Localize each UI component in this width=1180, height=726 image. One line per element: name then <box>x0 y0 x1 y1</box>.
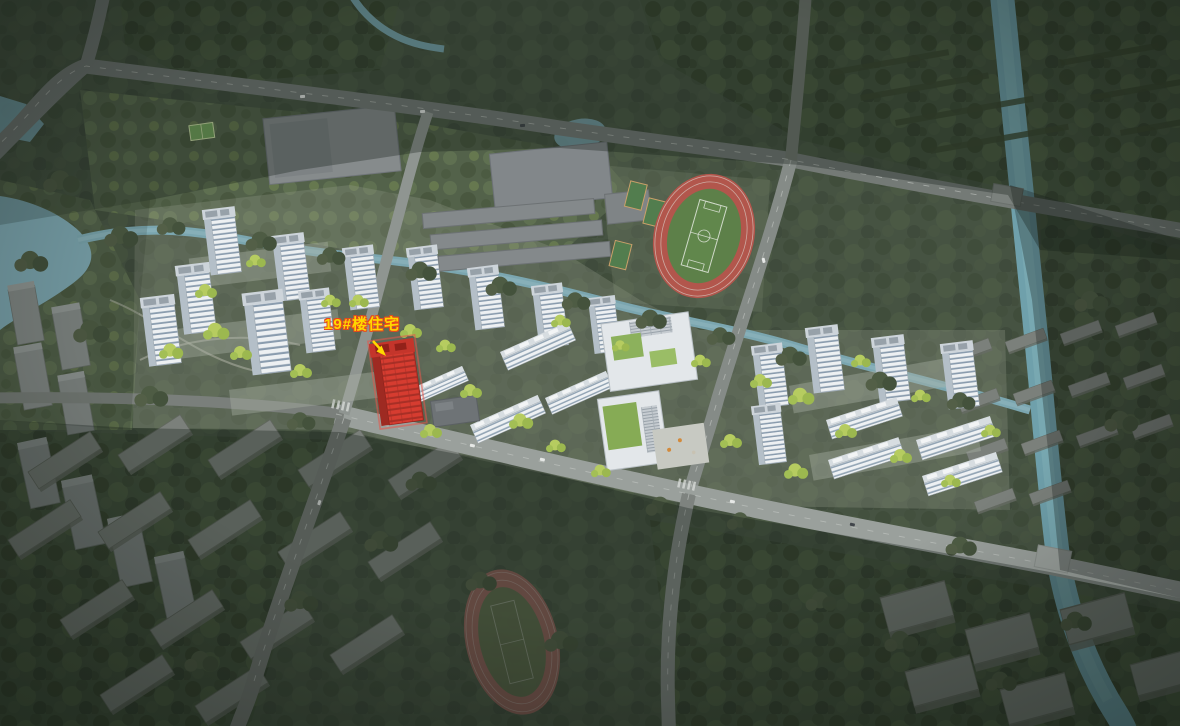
render-scene <box>0 0 1180 726</box>
masterplan-render: 19#楼住宅 <box>0 0 1180 726</box>
building-19-label: 19#楼住宅 <box>324 313 400 334</box>
vignette <box>0 0 1180 726</box>
